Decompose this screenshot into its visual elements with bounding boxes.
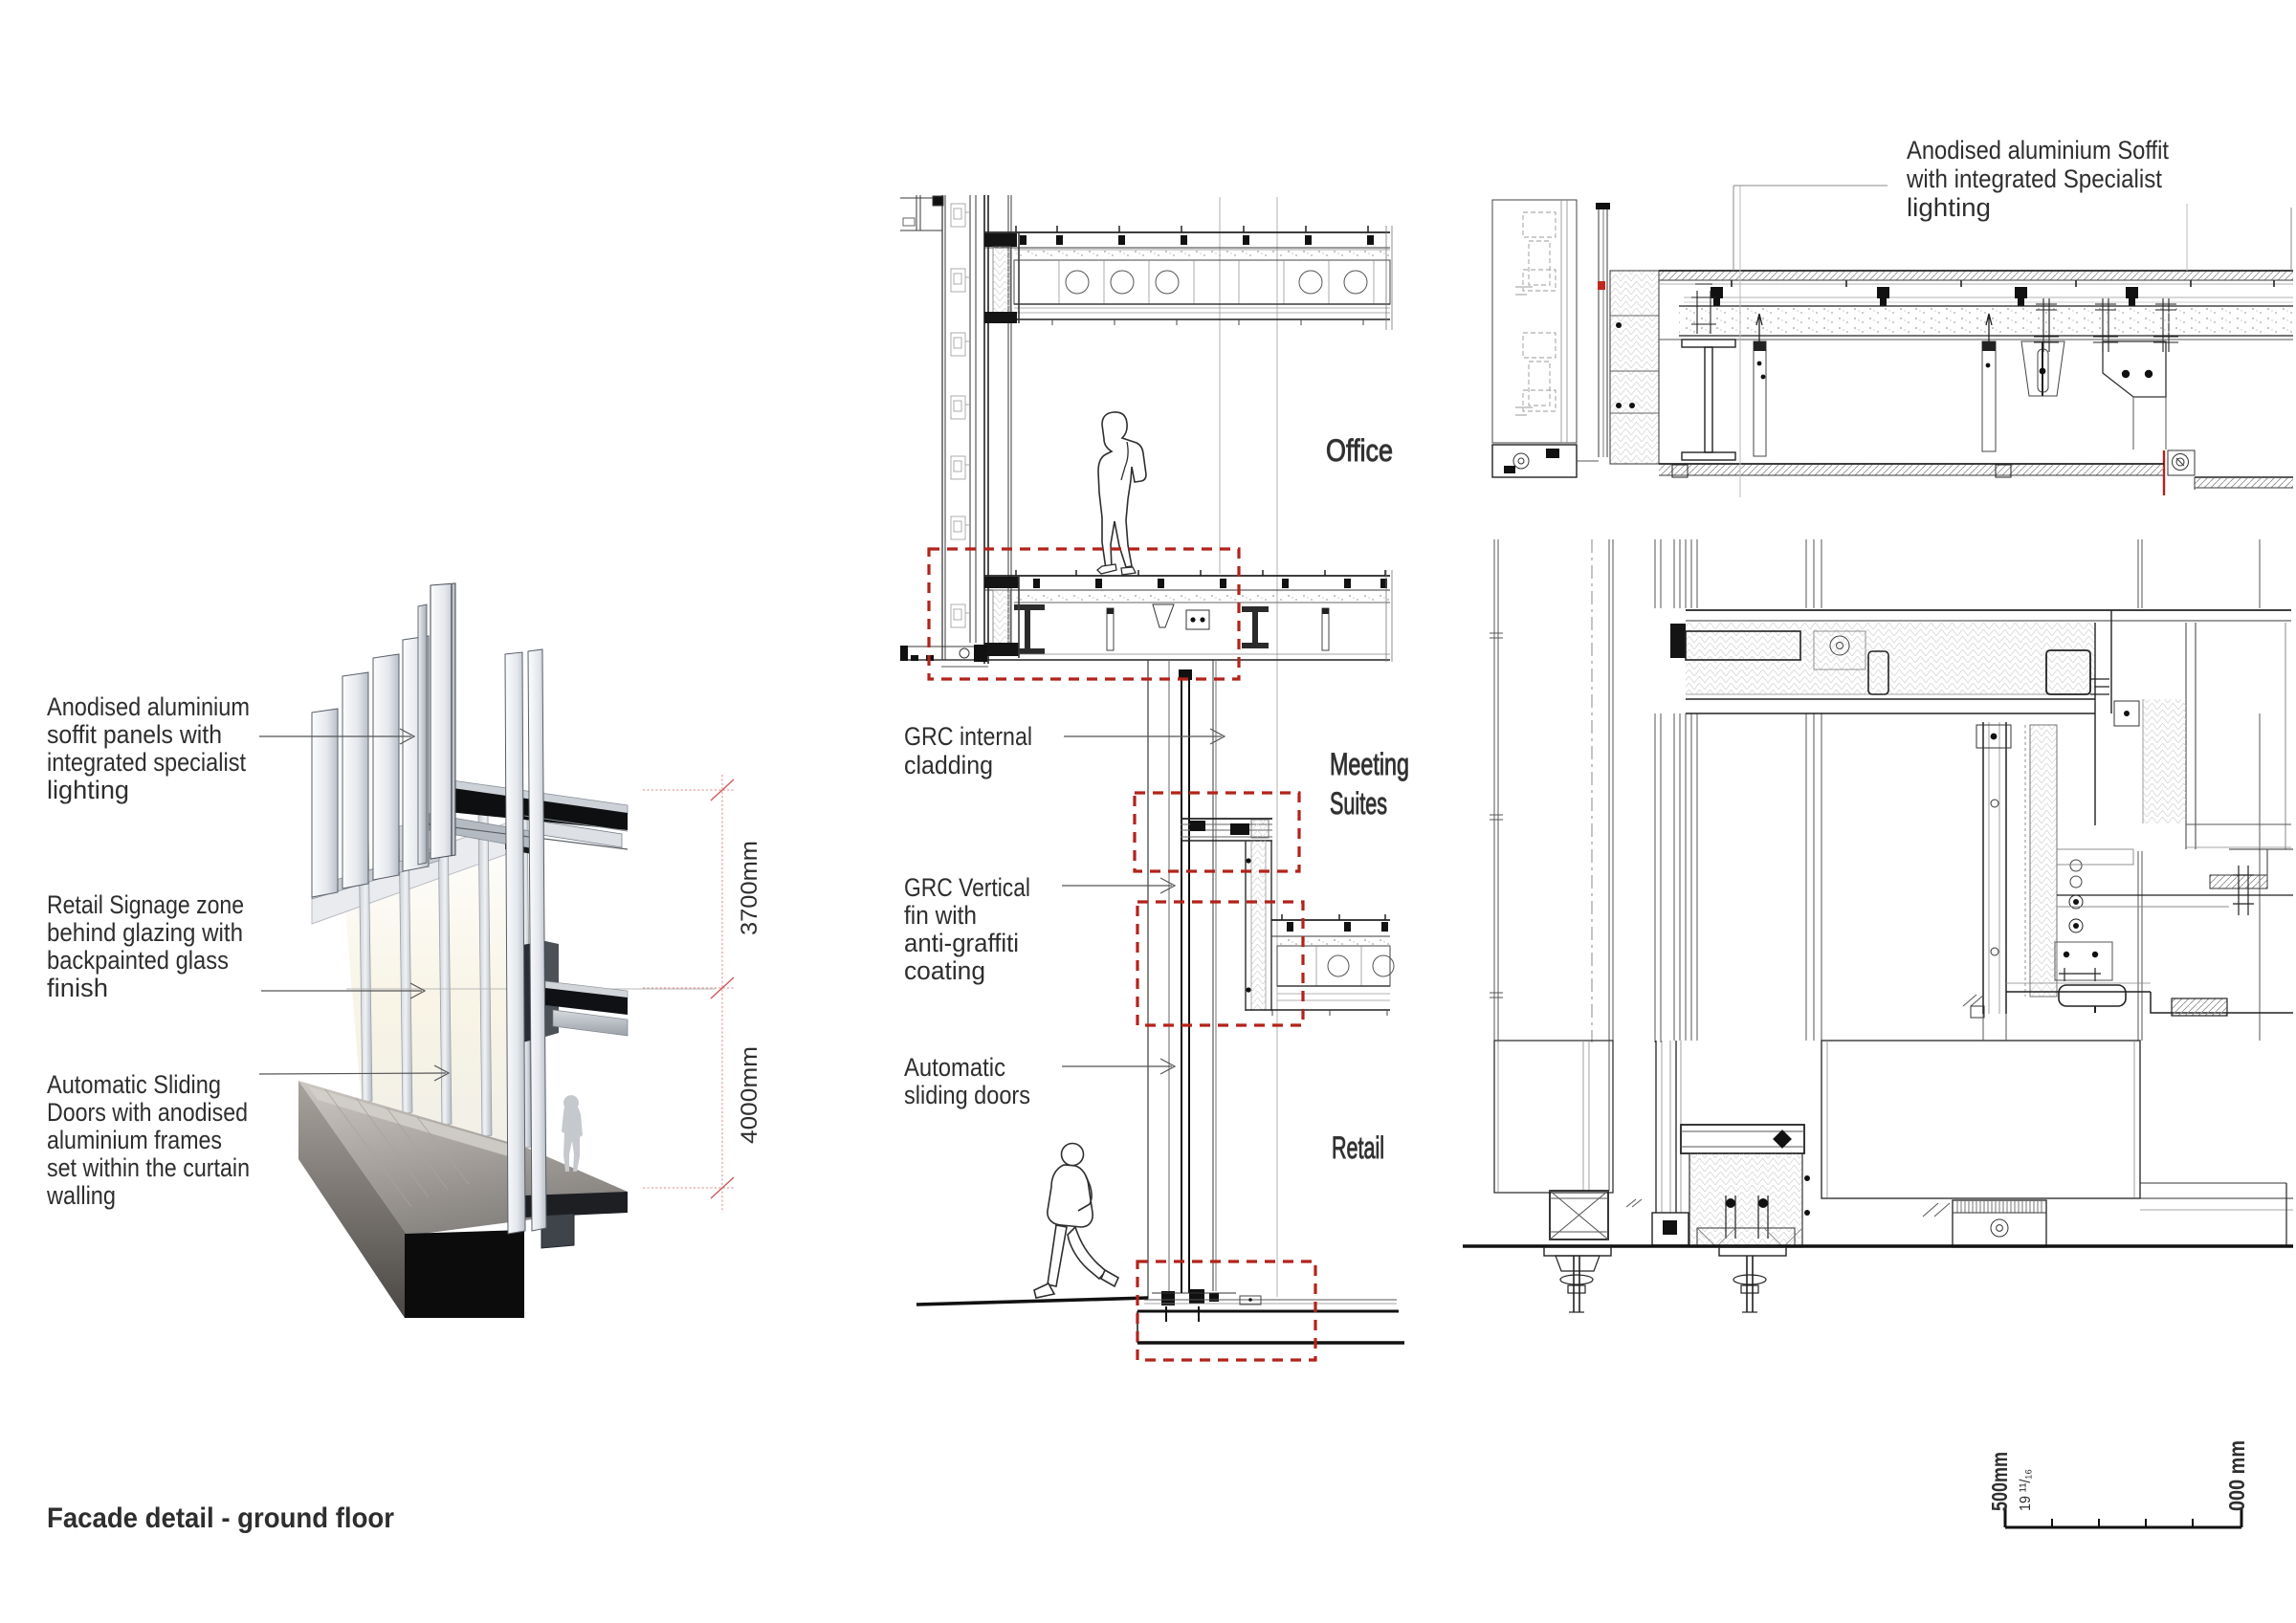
svg-text:Automatic: Automatic <box>904 1053 1005 1082</box>
svg-text:Meeting: Meeting <box>1330 747 1409 781</box>
svg-text:Doors with anodised: Doors with anodised <box>47 1098 248 1127</box>
svg-text:Anodised aluminium: Anodised aluminium <box>47 692 250 721</box>
svg-text:GRC Vertical: GRC Vertical <box>904 873 1030 902</box>
svg-text:soffit panels with: soffit panels with <box>47 720 222 749</box>
svg-text:Retail Signage zone: Retail Signage zone <box>47 890 244 919</box>
svg-text:aluminium frames: aluminium frames <box>47 1126 222 1154</box>
svg-text:4000mm: 4000mm <box>737 1046 762 1144</box>
svg-text:integrated specialist: integrated specialist <box>47 748 246 777</box>
svg-text:500mm: 500mm <box>1987 1452 2012 1511</box>
svg-text:cladding: cladding <box>904 751 993 779</box>
svg-text:000 mm: 000 mm <box>2224 1440 2249 1511</box>
svg-text:Office: Office <box>1326 433 1393 468</box>
svg-text:Suites: Suites <box>1330 786 1387 821</box>
svg-text:behind glazing with: behind glazing with <box>47 918 243 947</box>
svg-text:with integrated Specialist: with integrated Specialist <box>1906 164 2162 193</box>
svg-text:19 ¹¹/₁₆: 19 ¹¹/₁₆ <box>2018 1469 2034 1511</box>
svg-text:anti-graffiti: anti-graffiti <box>904 929 1019 957</box>
svg-text:Retail: Retail <box>1332 1130 1384 1165</box>
svg-text:finish: finish <box>47 974 108 1002</box>
svg-text:lighting: lighting <box>1907 193 1991 222</box>
svg-text:fin with: fin with <box>904 901 977 930</box>
svg-text:backpainted glass: backpainted glass <box>47 946 229 975</box>
svg-text:coating: coating <box>904 956 985 985</box>
svg-text:3700mm: 3700mm <box>737 841 762 935</box>
svg-text:Facade detail - ground floor: Facade detail - ground floor <box>47 1502 394 1534</box>
svg-text:sliding doors: sliding doors <box>904 1081 1030 1109</box>
svg-text:walling: walling <box>46 1181 116 1210</box>
svg-text:lighting: lighting <box>47 776 129 804</box>
svg-text:GRC internal: GRC internal <box>904 722 1032 751</box>
svg-text:Anodised aluminium Soffit: Anodised aluminium Soffit <box>1907 136 2169 164</box>
svg-text:Automatic Sliding: Automatic Sliding <box>47 1070 221 1099</box>
svg-text:set within the curtain: set within the curtain <box>47 1153 250 1182</box>
